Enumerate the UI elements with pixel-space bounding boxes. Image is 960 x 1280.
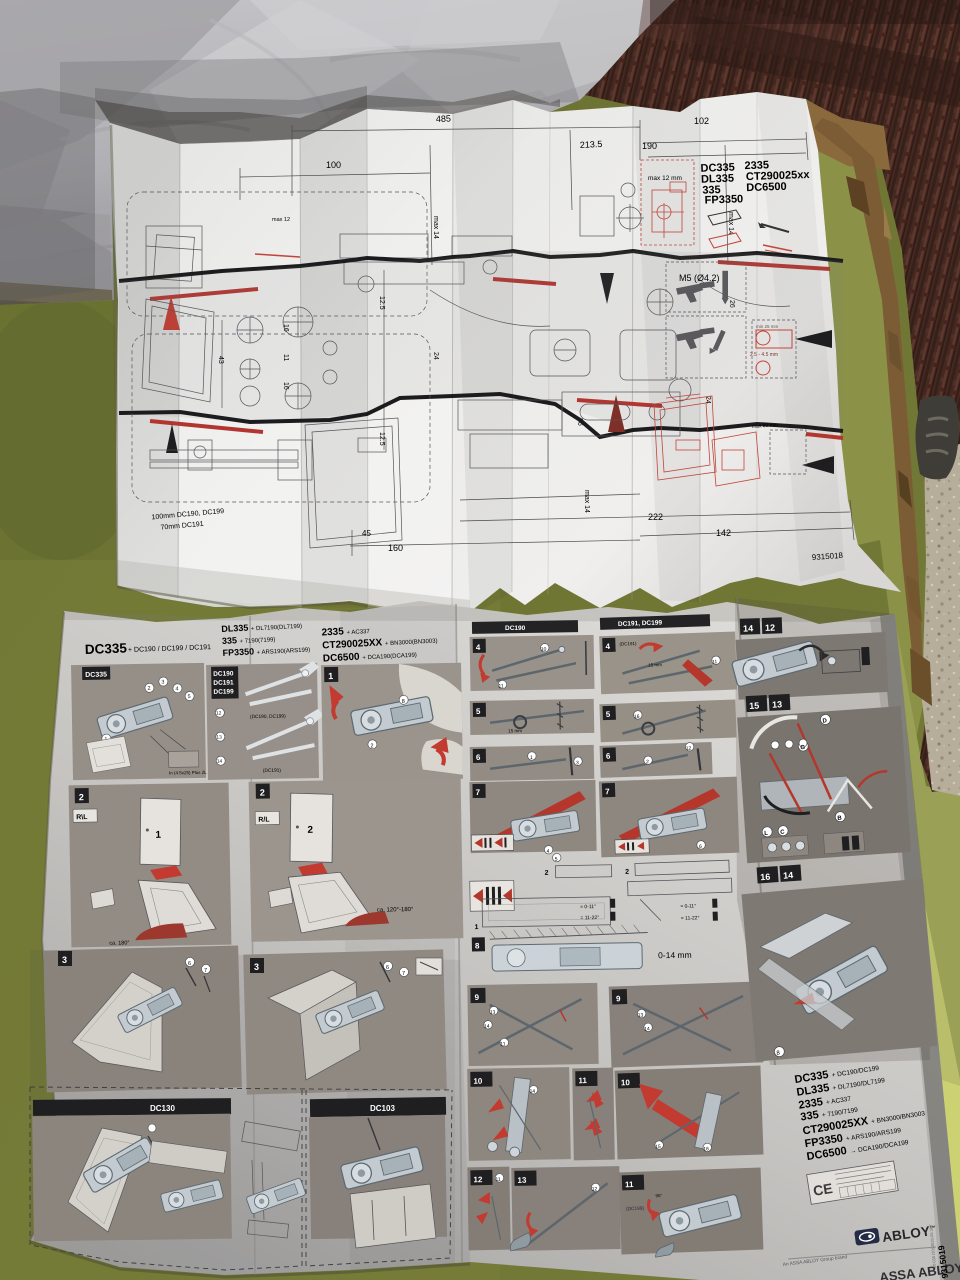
svg-text:≈ 0-11°: ≈ 0-11°	[680, 903, 696, 910]
svg-text:14: 14	[217, 759, 223, 765]
svg-text:100: 100	[326, 160, 341, 170]
svg-text:max 14: max 14	[432, 216, 439, 239]
svg-text:160: 160	[388, 543, 403, 553]
svg-text:7: 7	[476, 788, 481, 797]
svg-text:0-14 mm: 0-14 mm	[658, 950, 692, 961]
svg-text:= 11-22°: = 11-22°	[580, 915, 599, 921]
svg-text:G: G	[800, 745, 805, 751]
svg-text:102: 102	[694, 116, 709, 126]
svg-text:14: 14	[783, 870, 794, 881]
svg-text:min 25 mm: min 25 mm	[756, 324, 779, 329]
svg-text:5: 5	[476, 707, 481, 716]
svg-text:12: 12	[765, 623, 775, 633]
svg-text:2: 2	[545, 870, 549, 877]
svg-text:8: 8	[475, 941, 480, 950]
svg-text:CE: CE	[812, 1180, 834, 1199]
svg-text:DC199: DC199	[213, 688, 234, 695]
svg-text:DC335: DC335	[85, 672, 107, 679]
svg-text:In (4.5x25) Plus 2L: In (4.5x25) Plus 2L	[169, 770, 207, 776]
svg-text:4 mm: 4 mm	[742, 659, 754, 665]
svg-text:12: 12	[216, 711, 222, 717]
svg-text:15: 15	[749, 700, 760, 711]
svg-text:3: 3	[62, 955, 67, 965]
svg-text:R/L: R/L	[258, 816, 270, 823]
svg-text:2: 2	[260, 788, 265, 798]
svg-text:11: 11	[578, 1076, 587, 1085]
svg-text:15 mm: 15 mm	[648, 662, 662, 667]
svg-text:1: 1	[474, 924, 478, 931]
svg-text:14: 14	[743, 623, 753, 633]
svg-text:12.5: 12.5	[378, 296, 385, 310]
svg-text:(DC191): (DC191)	[263, 768, 282, 774]
svg-text:ca. 120°-180°: ca. 120°-180°	[377, 907, 414, 914]
svg-text:DC6500: DC6500	[746, 181, 787, 194]
svg-text:14: 14	[530, 1089, 536, 1095]
svg-text:≈ 0-11°: ≈ 0-11°	[580, 904, 596, 910]
svg-text:2: 2	[370, 743, 373, 749]
svg-text:2: 2	[307, 825, 313, 836]
svg-text:2: 2	[79, 792, 84, 802]
svg-text:DC191: DC191	[213, 679, 234, 686]
svg-text:13: 13	[517, 1176, 527, 1185]
svg-text:15 mm: 15 mm	[508, 728, 522, 733]
svg-text:5: 5	[555, 857, 558, 863]
svg-text:max 14: max 14	[727, 212, 734, 235]
svg-text:1: 1	[328, 671, 333, 681]
svg-text:45: 45	[362, 529, 371, 538]
svg-text:7: 7	[204, 968, 207, 974]
svg-text:2: 2	[625, 869, 629, 876]
svg-text:R\L: R\L	[76, 814, 88, 821]
svg-text:142: 142	[716, 528, 731, 538]
svg-text:10: 10	[621, 1078, 631, 1087]
svg-text:15: 15	[655, 1144, 661, 1150]
svg-text:12: 12	[686, 746, 692, 752]
svg-text:14: 14	[484, 1024, 490, 1030]
svg-text:6: 6	[386, 965, 389, 971]
svg-text:11: 11	[625, 1180, 634, 1189]
svg-text:8: 8	[402, 699, 405, 705]
svg-text:(DC191): (DC191)	[619, 641, 637, 647]
svg-text:43: 43	[217, 356, 224, 364]
svg-text:(DC199): (DC199)	[626, 1206, 645, 1213]
svg-text:DC190: DC190	[505, 625, 526, 632]
svg-text:5: 5	[188, 694, 191, 700]
svg-text:11: 11	[498, 683, 504, 689]
svg-text:2: 2	[147, 686, 150, 692]
svg-text:max 14: max 14	[583, 490, 590, 513]
svg-text:13: 13	[638, 1012, 644, 1018]
svg-text:DC130: DC130	[150, 1104, 175, 1113]
svg-text:190: 190	[642, 141, 657, 151]
svg-text:DC335: DC335	[85, 641, 128, 657]
svg-text:FP3350: FP3350	[704, 193, 743, 206]
svg-text:10: 10	[473, 1077, 483, 1086]
svg-text:11: 11	[500, 1041, 506, 1047]
svg-text:DC190: DC190	[213, 670, 234, 677]
svg-text:4: 4	[175, 686, 178, 692]
svg-text:3: 3	[254, 962, 259, 972]
svg-text:7: 7	[402, 971, 405, 977]
svg-text:ca. 180°: ca. 180°	[109, 940, 129, 946]
svg-text:222: 222	[648, 512, 663, 522]
svg-text:16: 16	[703, 1146, 709, 1152]
svg-text:14: 14	[644, 1026, 650, 1032]
svg-text:(DC190, DC199): (DC190, DC199)	[250, 714, 286, 721]
svg-text:13: 13	[490, 1010, 496, 1016]
svg-text:90°: 90°	[655, 1193, 662, 1198]
svg-text:max 12: max 12	[272, 217, 290, 223]
svg-text:2: 2	[646, 759, 649, 765]
svg-text:9: 9	[474, 993, 479, 1002]
svg-text:13: 13	[772, 699, 783, 710]
svg-text:1: 1	[155, 830, 161, 841]
svg-text:3: 3	[161, 680, 164, 686]
svg-text:= 11-22°: = 11-22°	[681, 915, 700, 922]
svg-text:10: 10	[541, 647, 547, 653]
svg-text:213.5: 213.5	[580, 139, 603, 150]
svg-text:4: 4	[476, 643, 481, 652]
svg-text:3: 3	[576, 760, 579, 766]
svg-text:12: 12	[592, 1186, 598, 1192]
svg-text:4: 4	[547, 849, 550, 855]
svg-text:1: 1	[530, 755, 533, 761]
svg-text:16: 16	[760, 872, 771, 883]
svg-text:16: 16	[634, 714, 640, 720]
svg-text:12: 12	[473, 1175, 483, 1184]
svg-text:6: 6	[476, 753, 481, 762]
svg-text:11: 11	[282, 354, 289, 361]
svg-text:13: 13	[216, 735, 222, 741]
svg-text:12.5: 12.5	[378, 432, 385, 446]
svg-text:6: 6	[188, 961, 191, 967]
svg-text:6: 6	[699, 844, 702, 850]
svg-text:11: 11	[495, 1177, 501, 1183]
svg-text:16: 16	[282, 324, 289, 332]
svg-text:2.5 - 4.5 mm: 2.5 - 4.5 mm	[750, 352, 778, 358]
svg-text:16: 16	[282, 382, 289, 390]
svg-text:max 12 mm: max 12 mm	[648, 175, 682, 182]
svg-text:DC103: DC103	[370, 1104, 395, 1113]
svg-text:485: 485	[436, 113, 451, 124]
svg-text:11: 11	[712, 659, 718, 665]
